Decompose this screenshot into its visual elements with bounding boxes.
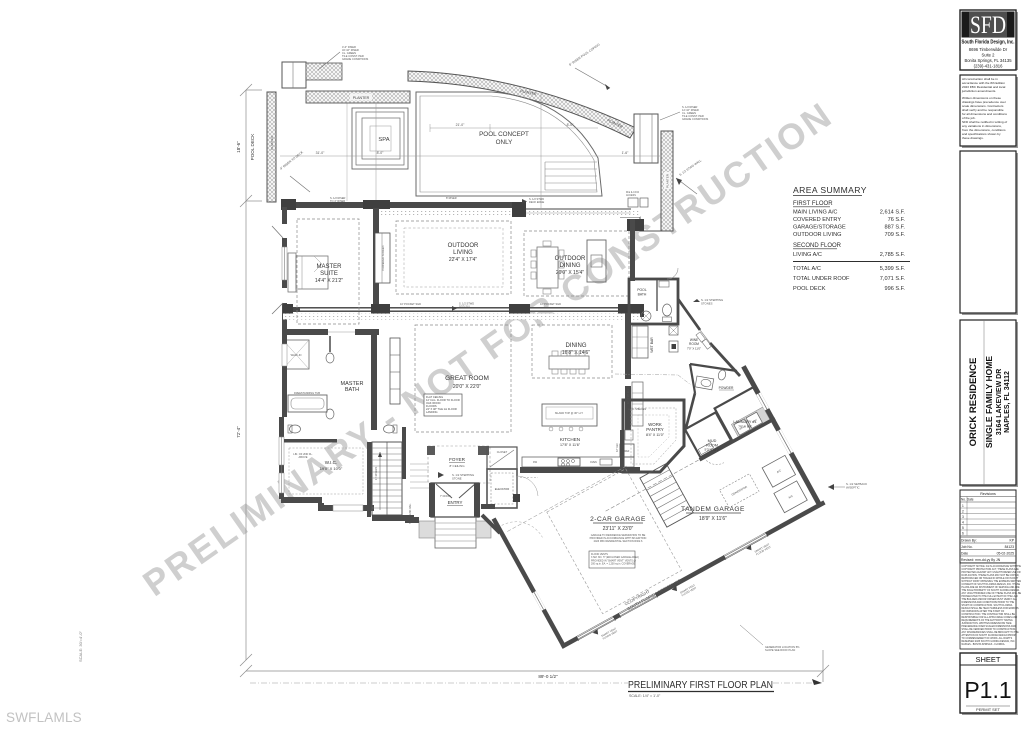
svg-text:Drawn By:: Drawn By: bbox=[961, 539, 977, 543]
svg-text:CONSENT OF SOUTH FLORIDA DESIG: CONSENT OF SOUTH FLORIDA DESIGN, INC. TH… bbox=[962, 583, 1021, 586]
svg-text:Date: Date bbox=[961, 552, 968, 556]
svg-text:ORICK RESIDENCE: ORICK RESIDENCE bbox=[968, 358, 979, 447]
svg-text:2-CAR GARAGE: 2-CAR GARAGE bbox=[590, 516, 646, 523]
svg-text:18'-6": 18'-6" bbox=[236, 141, 241, 153]
svg-text:STONE: STONE bbox=[452, 477, 462, 481]
svg-text:SHALL BE VERIFIED PRIOR TO CON: SHALL BE VERIFIED PRIOR TO CONSTRUCTION. bbox=[962, 628, 1017, 631]
svg-text:ELEVATOR: ELEVATOR bbox=[495, 487, 509, 491]
svg-text:3164 LAKEVIEW DR: 3164 LAKEVIEW DR bbox=[996, 369, 1003, 436]
svg-text:7,071 S.F.: 7,071 S.F. bbox=[880, 276, 906, 282]
svg-text:8696 Timberwilde Dr: 8696 Timberwilde Dr bbox=[969, 47, 1008, 52]
svg-text:21'-0": 21'-0" bbox=[456, 123, 465, 127]
svg-text:SOUTH FLORIDA DESIGN, INC.: SOUTH FLORIDA DESIGN, INC. bbox=[626, 577, 682, 611]
svg-text:W/SEPTIC: W/SEPTIC bbox=[846, 486, 860, 490]
svg-text:No. Date: No. Date bbox=[961, 498, 974, 502]
svg-text:SECOND FLOOR: SECOND FLOOR bbox=[793, 243, 842, 249]
svg-text:COVERED ENTRY: COVERED ENTRY bbox=[793, 217, 841, 223]
svg-text:14'4" X 21'2": 14'4" X 21'2" bbox=[315, 278, 343, 284]
svg-text:1: 1 bbox=[962, 504, 964, 508]
svg-text:P1.1: P1.1 bbox=[964, 677, 1011, 703]
svg-text:Suite 2: Suite 2 bbox=[981, 53, 995, 58]
svg-text:SINGLE FAMILY HOME: SINGLE FAMILY HOME bbox=[984, 356, 994, 448]
svg-text:CONSTRUCTION. THE CONTRACTOR S: CONSTRUCTION. THE CONTRACTOR SHALL BE bbox=[962, 613, 1016, 616]
svg-text:DINING: DINING bbox=[566, 343, 587, 349]
svg-text:89'-0 1/2": 89'-0 1/2" bbox=[538, 674, 558, 679]
svg-text:84123: 84123 bbox=[1005, 545, 1015, 549]
svg-text:GRADE CONDITIONS: GRADE CONDITIONS bbox=[682, 117, 708, 121]
svg-text:FIRST FLOOR: FIRST FLOOR bbox=[793, 201, 833, 207]
svg-text:996 S.F.: 996 S.F. bbox=[884, 286, 905, 292]
svg-text:ENTRY: ENTRY bbox=[448, 500, 463, 505]
svg-text:ONLY: ONLY bbox=[496, 139, 513, 146]
svg-text:REQUIREMENTS OF THE AUTHORITY: REQUIREMENTS OF THE AUTHORITY HAVING bbox=[962, 619, 1013, 622]
svg-text:these drawings.: these drawings. bbox=[962, 136, 984, 140]
svg-text:7'6" X 8'9": 7'6" X 8'9" bbox=[738, 425, 752, 429]
svg-text:SUITE: SUITE bbox=[320, 271, 338, 277]
svg-text:Job No.: Job No. bbox=[961, 545, 973, 549]
svg-text:19'0" X 10'0": 19'0" X 10'0" bbox=[320, 466, 343, 471]
svg-text:8'-0": 8'-0" bbox=[377, 151, 385, 155]
svg-text:W.I.C.: W.I.C. bbox=[325, 460, 338, 465]
svg-text:OR OMISSIONS AFTER THE START O: OR OMISSIONS AFTER THE START OF bbox=[962, 610, 1005, 613]
svg-text:12" D. SHELVES: 12" D. SHELVES bbox=[628, 408, 646, 411]
svg-text:3: 3 bbox=[962, 515, 964, 519]
svg-text:5,399 S.F.: 5,399 S.F. bbox=[880, 266, 906, 272]
svg-text:OUTDOOR: OUTDOOR bbox=[448, 243, 479, 249]
svg-text:GREAT ROOM: GREAT ROOM bbox=[445, 375, 489, 382]
svg-text:6" RISER POOL COPING: 6" RISER POOL COPING bbox=[568, 42, 601, 67]
svg-text:SPA: SPA bbox=[378, 137, 389, 143]
svg-text:8'-0": 8'-0" bbox=[567, 123, 575, 127]
svg-text:START OF CONSTRUCTION. SOUTH F: START OF CONSTRUCTION. SOUTH FLORIDA bbox=[962, 604, 1013, 607]
svg-text:DW: DW bbox=[533, 461, 538, 464]
svg-text:72'-4": 72'-4" bbox=[236, 426, 241, 438]
svg-text:PLANTER: PLANTER bbox=[666, 173, 670, 188]
svg-text:SFD: SFD bbox=[970, 12, 1006, 39]
svg-text:COPYRIGHT PROTECTION ACT, THES: COPYRIGHT PROTECTION ACT, THESE PLANS AR… bbox=[962, 568, 1020, 571]
svg-text:TO COMMENCEMENT OF WORK. ALL R: TO COMMENCEMENT OF WORK. ALL RIGHTS bbox=[962, 637, 1013, 640]
svg-text:GRADE CONDITIONS: GRADE CONDITIONS bbox=[342, 57, 368, 61]
svg-text:10' POCKET SGD: 10' POCKET SGD bbox=[400, 302, 421, 306]
svg-text:8' CEILING: 8' CEILING bbox=[449, 464, 465, 468]
svg-text:42" REF: 42" REF bbox=[616, 443, 619, 452]
svg-text:REF: REF bbox=[625, 450, 630, 453]
svg-text:POWERED SCREEN: POWERED SCREEN bbox=[381, 245, 385, 270]
svg-text:709 S.F.: 709 S.F. bbox=[884, 232, 905, 238]
svg-text:LANDING: LANDING bbox=[426, 410, 438, 414]
svg-text:5'0" X 11'0": 5'0" X 11'0" bbox=[704, 448, 719, 452]
svg-text:SCALE: 30'=4'-0": SCALE: 30'=4'-0" bbox=[78, 631, 83, 662]
svg-text:A/C: A/C bbox=[788, 494, 794, 500]
svg-text:Revisions: Revisions bbox=[980, 492, 996, 496]
svg-text:POOL DECK: POOL DECK bbox=[793, 286, 826, 292]
svg-text:WITHOUT FIRST OBTAINING THE EX: WITHOUT FIRST OBTAINING THE EXPRESS WRIT… bbox=[962, 580, 1022, 583]
svg-text:DUPLICATION. THESE PLANS MAY N: DUPLICATION. THESE PLANS MAY NOT BE COPI… bbox=[962, 574, 1020, 577]
svg-text:DECK EDGE: DECK EDGE bbox=[529, 200, 545, 204]
svg-text:TOTAL A/C: TOTAL A/C bbox=[793, 266, 821, 272]
svg-text:POOL DECK: POOL DECK bbox=[250, 133, 255, 161]
svg-text:18'9" X 11'6": 18'9" X 11'6" bbox=[699, 516, 727, 522]
svg-text:PLANTER: PLANTER bbox=[353, 96, 370, 100]
svg-text:ANY UNAUTHORIZED USE OF THESE: ANY UNAUTHORIZED USE OF THESE PLANS WILL… bbox=[962, 592, 1022, 595]
svg-text:LAUNDRY #1: LAUNDRY #1 bbox=[733, 420, 756, 424]
svg-text:CLOSET: CLOSET bbox=[497, 450, 508, 454]
svg-text:ABOVE: ABOVE bbox=[299, 455, 308, 459]
svg-text:TOTAL UNDER ROOF: TOTAL UNDER ROOF bbox=[793, 276, 850, 282]
svg-text:AREA SUMMARY: AREA SUMMARY bbox=[793, 185, 867, 195]
svg-text:2: 2 bbox=[962, 510, 964, 514]
svg-text:JURISDICTION. WRITTEN DIMENSIO: JURISDICTION. WRITTEN DIMENSIONS TAKE bbox=[962, 622, 1013, 625]
svg-text:jurisdiction amendments.: jurisdiction amendments. bbox=[961, 89, 996, 93]
svg-text:SCALE: 1/4" = 1'-0": SCALE: 1/4" = 1'-0" bbox=[629, 694, 661, 698]
svg-text:KP: KP bbox=[1009, 539, 1014, 543]
svg-text:OUTDOOR LIVING: OUTDOOR LIVING bbox=[793, 232, 841, 238]
svg-text:NAPLES - BONITA SPRINGS - FLOR: NAPLES - BONITA SPRINGS - FLORIDA. bbox=[962, 643, 1006, 646]
svg-text:76 S.F.: 76 S.F. bbox=[888, 217, 906, 223]
svg-text:THE SOLE PROPERTY OF SOUTH FLO: THE SOLE PROPERTY OF SOUTH FLORIDA DESIG… bbox=[962, 589, 1021, 592]
svg-text:20'0" X 22'0": 20'0" X 22'0" bbox=[453, 384, 481, 390]
svg-text:POOL CONCEPT: POOL CONCEPT bbox=[479, 131, 529, 138]
svg-text:LIVING: LIVING bbox=[453, 250, 473, 256]
svg-text:ANY DISCREPANCIES SHALL BE BRO: ANY DISCREPANCIES SHALL BE BROUGHT TO TH… bbox=[962, 631, 1020, 634]
svg-text:ACCESS: ACCESS bbox=[626, 194, 636, 197]
svg-text:8'4" X 11'0": 8'4" X 11'0" bbox=[646, 433, 665, 437]
svg-text:ATTENTION OF SOUTH FLORIDA DES: ATTENTION OF SOUTH FLORIDA DESIGN PRIOR bbox=[962, 634, 1016, 637]
svg-text:2,785 S.F.: 2,785 S.F. bbox=[880, 252, 906, 258]
svg-text:ISLAND TOP @ 36" H.T.: ISLAND TOP @ 36" H.T. bbox=[555, 411, 584, 415]
svg-text:MASTER: MASTER bbox=[316, 264, 342, 270]
svg-text:6: 6 bbox=[962, 532, 964, 536]
svg-text:22'4" X 17'4": 22'4" X 17'4" bbox=[449, 257, 477, 263]
svg-text:PLANS ARE AN INSTRUMENT OF SER: PLANS ARE AN INSTRUMENT OF SERVICE AND A… bbox=[962, 586, 1020, 589]
svg-text:S. 1/2 STWD WALL: S. 1/2 STWD WALL bbox=[678, 158, 702, 177]
svg-text:2023 FBC RESIDENTIAL SECTION R: 2023 FBC RESIDENTIAL SECTION R302.6 bbox=[594, 540, 643, 543]
svg-text:17 RISERS: 17 RISERS bbox=[374, 466, 378, 480]
svg-text:10' POCKET SGD: 10' POCKET SGD bbox=[540, 302, 561, 306]
svg-text:DESIGN SHALL BE HELD HARMLESS: DESIGN SHALL BE HELD HARMLESS FOR ERRORS bbox=[962, 607, 1020, 610]
svg-text:STONES: STONES bbox=[701, 301, 713, 305]
svg-text:RESERVED 2025 SOUTH FLORIDA DE: RESERVED 2025 SOUTH FLORIDA DESIGN, INC. bbox=[962, 640, 1016, 643]
svg-text:2,614 S.F.: 2,614 S.F. bbox=[880, 210, 906, 216]
svg-text:DIMENSIONS AND CONDITIONS PRIO: DIMENSIONS AND CONDITIONS PRIOR TO THE bbox=[962, 601, 1015, 604]
svg-text:RESPONSIBLE FOR ALL APPLICABLE: RESPONSIBLE FOR ALL APPLICABLE CODES AND bbox=[962, 616, 1018, 619]
svg-text:WALK-IN: WALK-IN bbox=[291, 353, 302, 357]
svg-text:17'8" X 11'6": 17'8" X 11'6" bbox=[560, 443, 581, 447]
svg-text:Revised: mm-dd-yy By JN: Revised: mm-dd-yy By JN bbox=[961, 558, 1001, 562]
svg-text:20'0" X 15'4": 20'0" X 15'4" bbox=[556, 270, 584, 276]
svg-text:PANTRY: PANTRY bbox=[646, 427, 663, 432]
svg-text:PRECEDENCE OVER SCALED DIMENSI: PRECEDENCE OVER SCALED DIMENSIONS AND bbox=[962, 625, 1017, 628]
svg-text:GENERATOR: GENERATOR bbox=[731, 485, 748, 497]
svg-text:OVEN: OVEN bbox=[590, 461, 597, 464]
svg-text:PLANTER: PLANTER bbox=[270, 135, 274, 150]
svg-text:PROSECUTED TO THE FULL EXTENT: PROSECUTED TO THE FULL EXTENT OF THE LAW… bbox=[962, 595, 1019, 598]
svg-text:(239)-431-1816: (239)-431-1816 bbox=[974, 64, 1004, 69]
svg-text:POOL: POOL bbox=[637, 288, 647, 292]
svg-text:887 S.F.: 887 S.F. bbox=[884, 225, 905, 231]
svg-text:LIVING A/C: LIVING A/C bbox=[793, 252, 822, 258]
svg-text:23'11" X 23'0": 23'11" X 23'0" bbox=[603, 526, 634, 532]
svg-text:FREESTANDING TUB: FREESTANDING TUB bbox=[294, 391, 320, 395]
svg-text:MAIN LIVING A/C: MAIN LIVING A/C bbox=[793, 210, 837, 216]
svg-text:COPYRIGHT NOTICE: AS IN ACCORD: COPYRIGHT NOTICE: AS IN ACCORDANCE WITH … bbox=[962, 565, 1022, 568]
svg-text:BATH: BATH bbox=[638, 293, 647, 297]
svg-text:PANTRY 6'-1": PANTRY 6'-1" bbox=[626, 388, 630, 404]
svg-text:South Florida Design, Inc.: South Florida Design, Inc. bbox=[962, 40, 1015, 46]
svg-text:PERMIT SET: PERMIT SET bbox=[976, 707, 1000, 712]
svg-text:SGD SILL: SGD SILL bbox=[459, 305, 471, 309]
svg-text:SLOPE SEE ROOF PLAN: SLOPE SEE ROOF PLAN bbox=[765, 648, 795, 652]
svg-text:4: 4 bbox=[962, 521, 964, 525]
svg-text:PROTECTED AGAINST ANY UNAUTHOR: PROTECTED AGAINST ANY UNAUTHORIZED USE O… bbox=[962, 571, 1021, 574]
svg-text:SWFLAMLS: SWFLAMLS bbox=[6, 710, 82, 725]
svg-text:7' DOOR: 7' DOOR bbox=[440, 494, 451, 498]
svg-text:A/C: A/C bbox=[776, 468, 782, 474]
svg-text:7'0" X 11'0": 7'0" X 11'0" bbox=[687, 346, 701, 350]
svg-text:MUD: MUD bbox=[708, 439, 717, 443]
svg-text:FOYER: FOYER bbox=[449, 457, 466, 462]
svg-text:05-02-2025: 05-02-2025 bbox=[997, 552, 1014, 556]
svg-text:GARAGE/STORAGE: GARAGE/STORAGE bbox=[793, 225, 846, 231]
svg-text:KITCHEN: KITCHEN bbox=[560, 437, 580, 442]
svg-text:PRELIMINARY FIRST FLOOR PLAN: PRELIMINARY FIRST FLOOR PLAN bbox=[628, 679, 773, 691]
svg-text:WET BAR: WET BAR bbox=[650, 337, 654, 353]
svg-text:TO 4" RISER: TO 4" RISER bbox=[330, 199, 345, 203]
svg-text:1'-6": 1'-6" bbox=[622, 151, 630, 155]
svg-text:SHEET: SHEET bbox=[975, 655, 1000, 664]
svg-text:5: 5 bbox=[962, 526, 964, 530]
svg-text:REPRODUCED OR TRACED IN WHOLE: REPRODUCED OR TRACED IN WHOLE OR IN PART bbox=[962, 577, 1019, 580]
svg-text:THE BUILDER AND/OR OWNER MUST: THE BUILDER AND/OR OWNER MUST VERIFY ALL bbox=[962, 598, 1018, 601]
svg-text:BATH: BATH bbox=[345, 387, 359, 393]
svg-text:POWDER: POWDER bbox=[719, 386, 734, 390]
svg-text:TANDEM GARAGE: TANDEM GARAGE bbox=[681, 506, 745, 513]
svg-text:200 sq.in. EA. = 1,200 sq.in.: 200 sq.in. EA. = 1,200 sq.in. COVERAGE bbox=[591, 563, 636, 566]
svg-text:4" RISER TO DECK: 4" RISER TO DECK bbox=[279, 150, 305, 171]
svg-text:8' RISER: 8' RISER bbox=[446, 196, 457, 200]
svg-text:31'-0": 31'-0" bbox=[316, 151, 325, 155]
svg-text:Bonita Springs, FL 34135: Bonita Springs, FL 34135 bbox=[964, 58, 1012, 63]
svg-text:NAPLES, FL 34112: NAPLES, FL 34112 bbox=[1004, 371, 1011, 433]
